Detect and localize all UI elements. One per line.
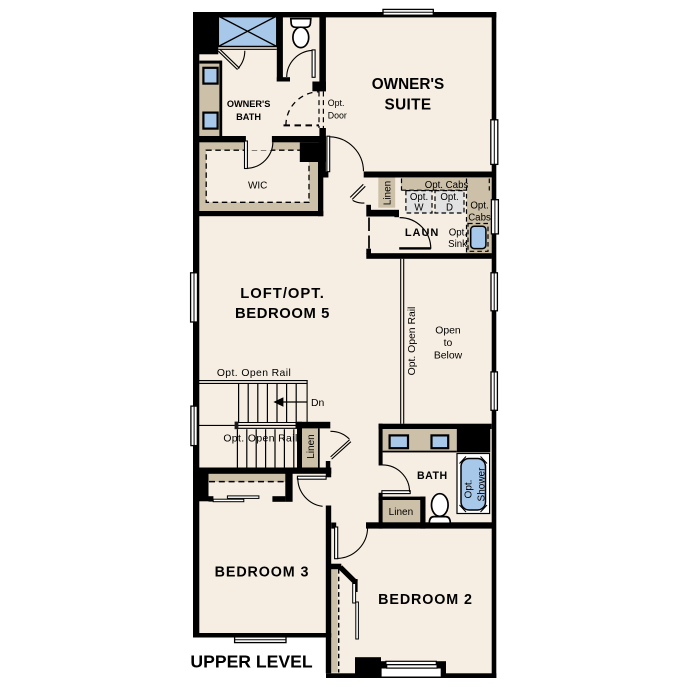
svg-text:Opt.: Opt. — [470, 201, 488, 212]
svg-text:Dn: Dn — [311, 398, 325, 409]
svg-text:WIC: WIC — [248, 180, 267, 191]
svg-text:Linen: Linen — [389, 507, 413, 518]
svg-text:Below: Below — [434, 351, 463, 362]
svg-text:W: W — [414, 203, 424, 214]
svg-text:Opt. Open Rail: Opt. Open Rail — [223, 433, 297, 444]
svg-text:Cabs: Cabs — [468, 213, 491, 224]
svg-text:Opt.: Opt. — [440, 192, 458, 203]
svg-text:Opt. Open Rail: Opt. Open Rail — [407, 307, 418, 376]
svg-text:BEDROOM 3: BEDROOM 3 — [215, 565, 310, 581]
svg-text:to: to — [444, 338, 453, 349]
svg-text:LAUN: LAUN — [405, 227, 440, 239]
svg-text:SUITE: SUITE — [384, 96, 431, 113]
svg-text:BEDROOM 2: BEDROOM 2 — [378, 592, 473, 608]
svg-text:BATH: BATH — [236, 112, 261, 122]
svg-text:BATH: BATH — [417, 470, 448, 482]
svg-text:Opt. Cabs: Opt. Cabs — [425, 180, 469, 191]
svg-text:BEDROOM 5: BEDROOM 5 — [235, 306, 330, 322]
svg-text:OWNER'S: OWNER'S — [372, 76, 444, 93]
svg-text:D: D — [446, 203, 453, 214]
svg-text:Door: Door — [328, 111, 347, 121]
svg-text:Open: Open — [435, 326, 461, 337]
svg-text:UPPER LEVEL: UPPER LEVEL — [190, 651, 312, 671]
svg-text:Shower: Shower — [477, 467, 488, 502]
svg-text:LOFT/OPT.: LOFT/OPT. — [240, 286, 325, 302]
svg-text:Opt. Open Rail: Opt. Open Rail — [217, 368, 291, 379]
svg-text:Opt.: Opt. — [449, 228, 467, 239]
svg-text:Opt.: Opt. — [463, 480, 474, 499]
svg-text:Sink: Sink — [448, 239, 467, 250]
svg-text:Linen: Linen — [306, 434, 317, 458]
svg-text:Linen: Linen — [382, 181, 393, 205]
svg-text:Opt.: Opt. — [328, 98, 345, 108]
svg-text:OWNER'S: OWNER'S — [227, 99, 271, 109]
svg-text:Opt.: Opt. — [410, 192, 428, 203]
